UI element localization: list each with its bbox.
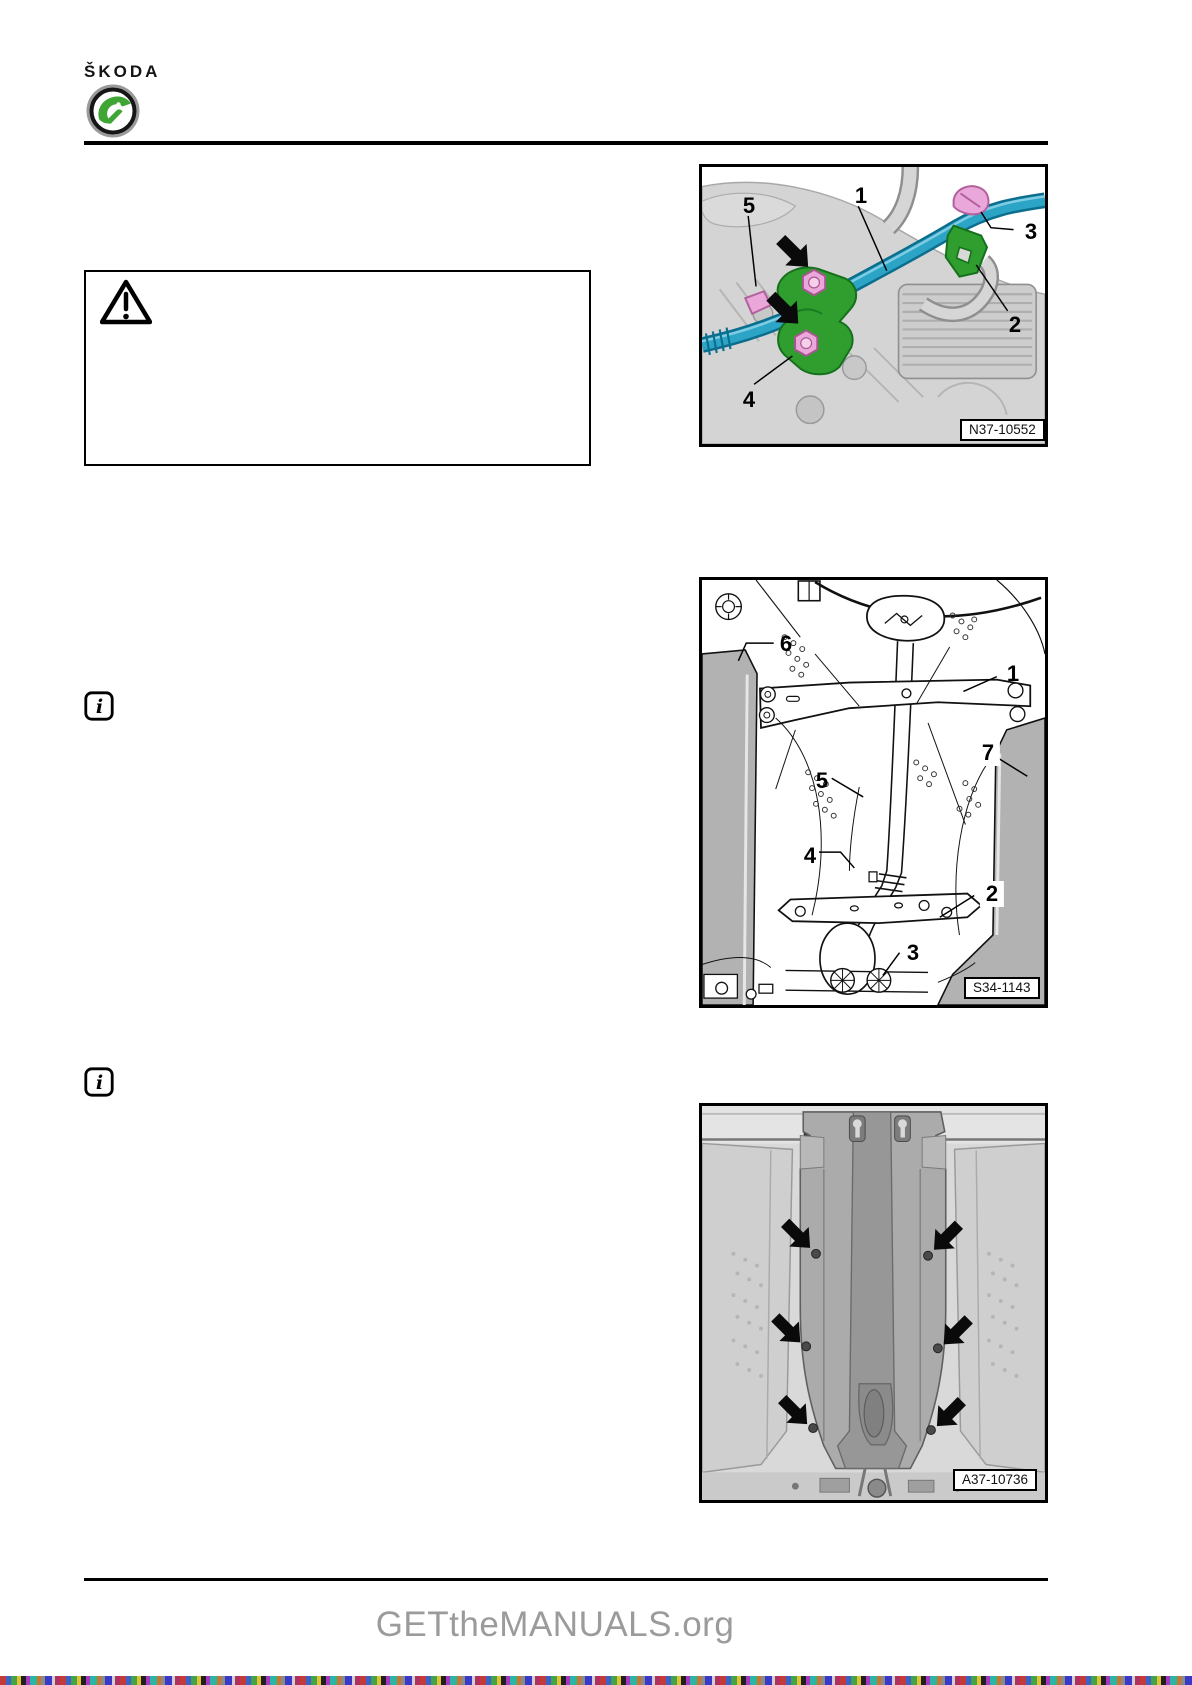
figure-insulation-cover: A37-10736: [699, 1103, 1048, 1503]
callout-3: 3: [1025, 221, 1037, 243]
svg-text:i: i: [96, 1072, 103, 1094]
svg-text:i: i: [96, 696, 103, 718]
figure-ref: S34-1143: [964, 977, 1040, 999]
callout-2: 2: [980, 881, 1004, 907]
callout-1: 1: [855, 185, 867, 207]
brand-wordmark: ŠKODA: [84, 62, 160, 82]
info-icon: i: [84, 691, 114, 721]
footer-rule: [84, 1578, 1048, 1581]
callout-5: 5: [743, 195, 755, 217]
callout-7: 7: [976, 740, 1000, 766]
callout-2: 2: [1009, 314, 1021, 336]
manual-page: ŠKODA i i: [0, 0, 1192, 1685]
callout-5: 5: [816, 770, 828, 792]
scan-noise-strip: [0, 1676, 1192, 1685]
underbody-line-drawing: [702, 580, 1045, 1005]
footer-site-text: GETtheMANUALS.org: [0, 1605, 1110, 1645]
figure-cross-brace: 6 1 7 5 4 2 3 S34-1143: [699, 577, 1048, 1008]
callout-4: 4: [804, 845, 816, 867]
warning-triangle-icon: [100, 278, 152, 326]
callout-6: 6: [780, 633, 792, 655]
figure-coolant-pipe: 5 1 3 2 4 N37-10552: [699, 164, 1048, 447]
callout-1: 1: [1007, 663, 1019, 685]
info-icon: i: [84, 1067, 114, 1097]
warning-box: [84, 270, 591, 466]
header-rule: [84, 141, 1048, 145]
figure-ref: A37-10736: [953, 1469, 1037, 1491]
figure-ref: N37-10552: [960, 419, 1045, 441]
skoda-logo-icon: [86, 84, 140, 138]
callout-4: 4: [743, 389, 755, 411]
callout-3: 3: [907, 942, 919, 964]
underbody-cover-illustration: [702, 1106, 1045, 1500]
